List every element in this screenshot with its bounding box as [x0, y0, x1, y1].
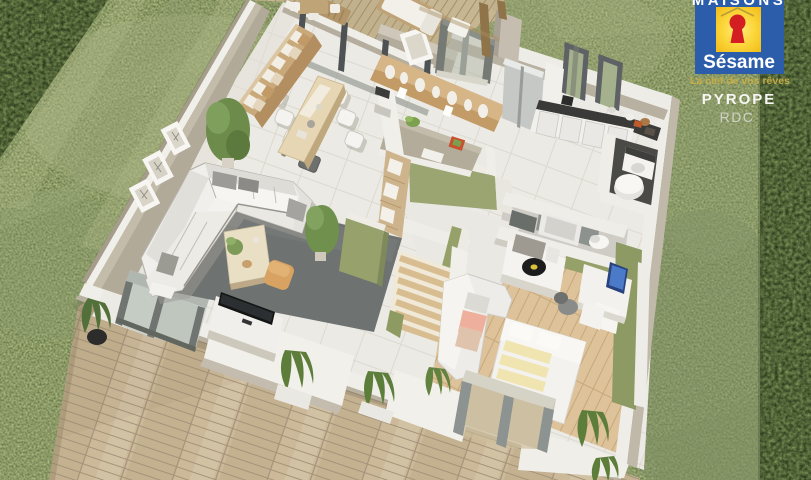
- svg-text:PYROPE: PYROPE: [702, 91, 777, 108]
- svg-text:MAISONS: MAISONS: [692, 0, 787, 9]
- svg-text:La clef de vos rêves: La clef de vos rêves: [690, 75, 790, 87]
- svg-text:Sésame: Sésame: [703, 52, 775, 73]
- svg-text:RDC: RDC: [720, 109, 755, 125]
